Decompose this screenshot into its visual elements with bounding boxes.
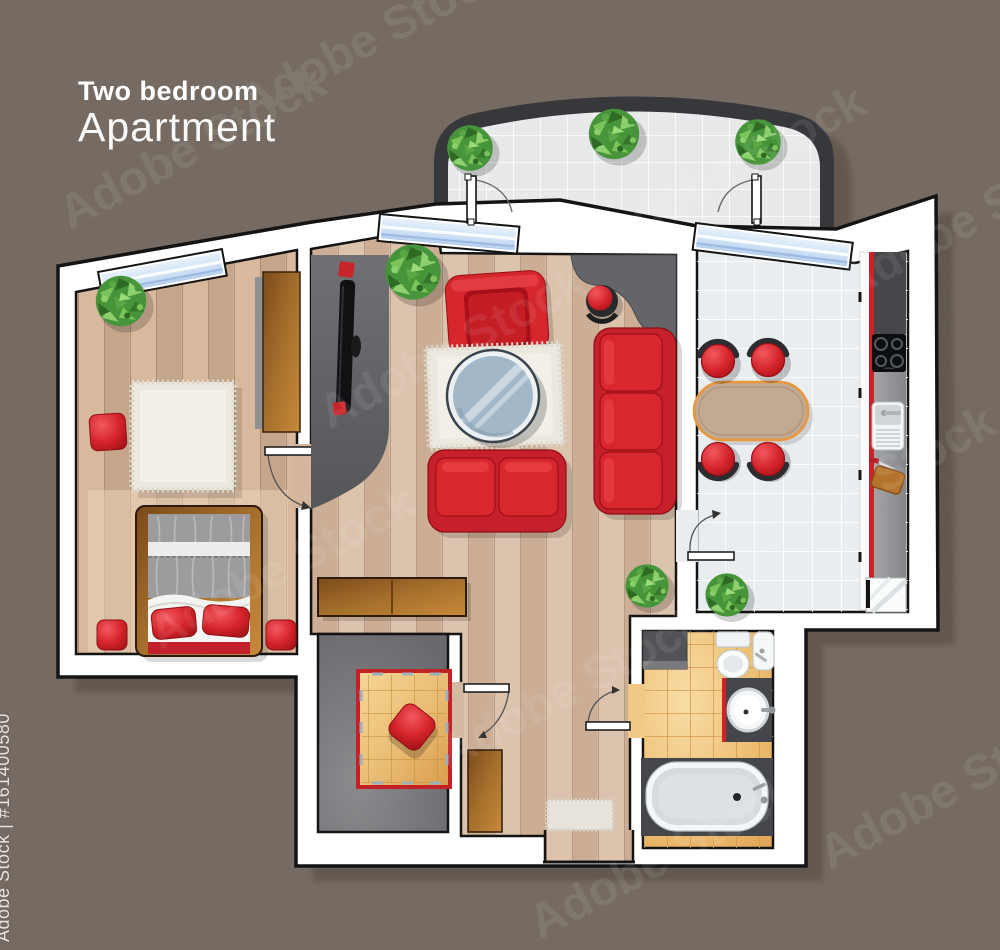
- dining-chair: [700, 342, 741, 384]
- tv-unit-decor: [338, 261, 355, 278]
- three-seat-sofa: [594, 328, 682, 520]
- nightstand-pouf: [266, 620, 296, 650]
- stock-credit-watermark: Adobe Stock | #161400580: [0, 713, 14, 942]
- kitchen-appliance: [866, 578, 906, 612]
- dining-chair: [750, 341, 791, 383]
- floor-plan-illustration: Adobe Stock Adobe Stock Adobe Stock Adob…: [0, 0, 1000, 950]
- pouf: [89, 413, 127, 451]
- kitchen-counter: [859, 252, 907, 612]
- title-line2: Apartment: [78, 105, 276, 149]
- corner-sink: [753, 632, 774, 670]
- loveseat-sofa: [428, 450, 572, 538]
- nightstand-pouf: [97, 620, 127, 650]
- toilet: [716, 632, 750, 678]
- bedroom-rug: [132, 382, 242, 498]
- sideboard: [318, 578, 471, 621]
- doormat: [547, 800, 613, 830]
- cooktop: [872, 334, 906, 372]
- wardrobe-side: [255, 277, 263, 429]
- dining-table: [694, 382, 813, 445]
- title-block: Two bedroom Apartment: [78, 78, 276, 149]
- title-line1: Two bedroom: [78, 78, 276, 105]
- vanity-sink: [722, 678, 776, 742]
- wardrobe: [263, 272, 300, 432]
